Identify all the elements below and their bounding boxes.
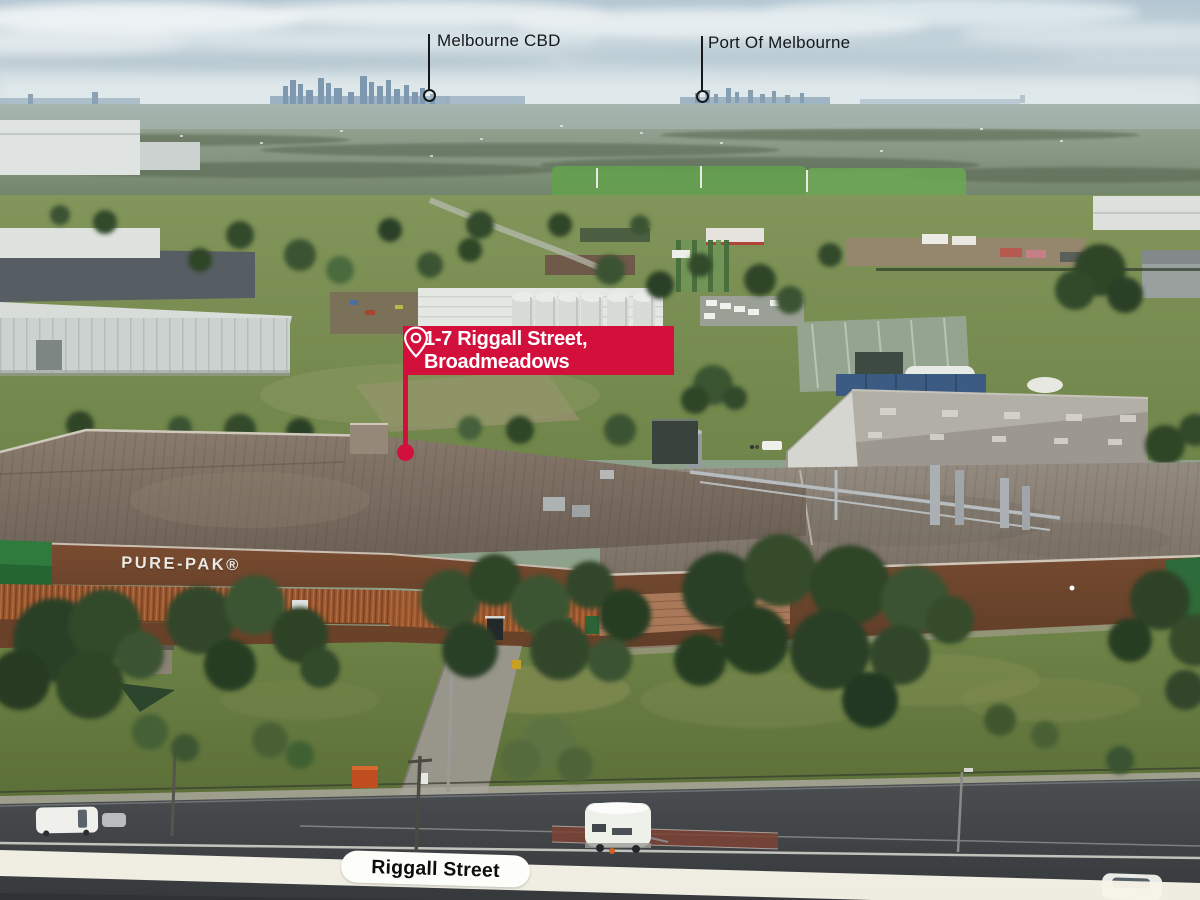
cbd-leader-line <box>428 34 430 89</box>
location-pin-icon <box>403 326 429 358</box>
callout-marker-dot <box>397 444 414 461</box>
port-label: Port Of Melbourne <box>708 33 850 53</box>
building-signage: PURE-PAK® <box>110 554 252 576</box>
cbd-marker-circle <box>423 89 436 102</box>
aerial-photo-scene: PURE-PAK® Melbourne CBD Port Of Melbourn… <box>0 0 1200 900</box>
street-name-pill: Riggall Street <box>341 850 531 888</box>
address-callout: 1-7 Riggall Street, Broadmeadows <box>403 326 674 375</box>
callout-leader-line <box>403 374 408 446</box>
address-text: 1-7 Riggall Street, Broadmeadows <box>424 328 587 374</box>
street-name-label: Riggall Street <box>371 856 500 883</box>
address-line2: Broadmeadows <box>424 351 587 374</box>
cbd-label: Melbourne CBD <box>437 31 561 51</box>
address-line1: 1-7 Riggall Street, <box>424 328 587 351</box>
port-leader-line <box>701 36 703 90</box>
port-marker-circle <box>696 90 709 103</box>
annotation-overlay: PURE-PAK® Melbourne CBD Port Of Melbourn… <box>0 0 1200 900</box>
